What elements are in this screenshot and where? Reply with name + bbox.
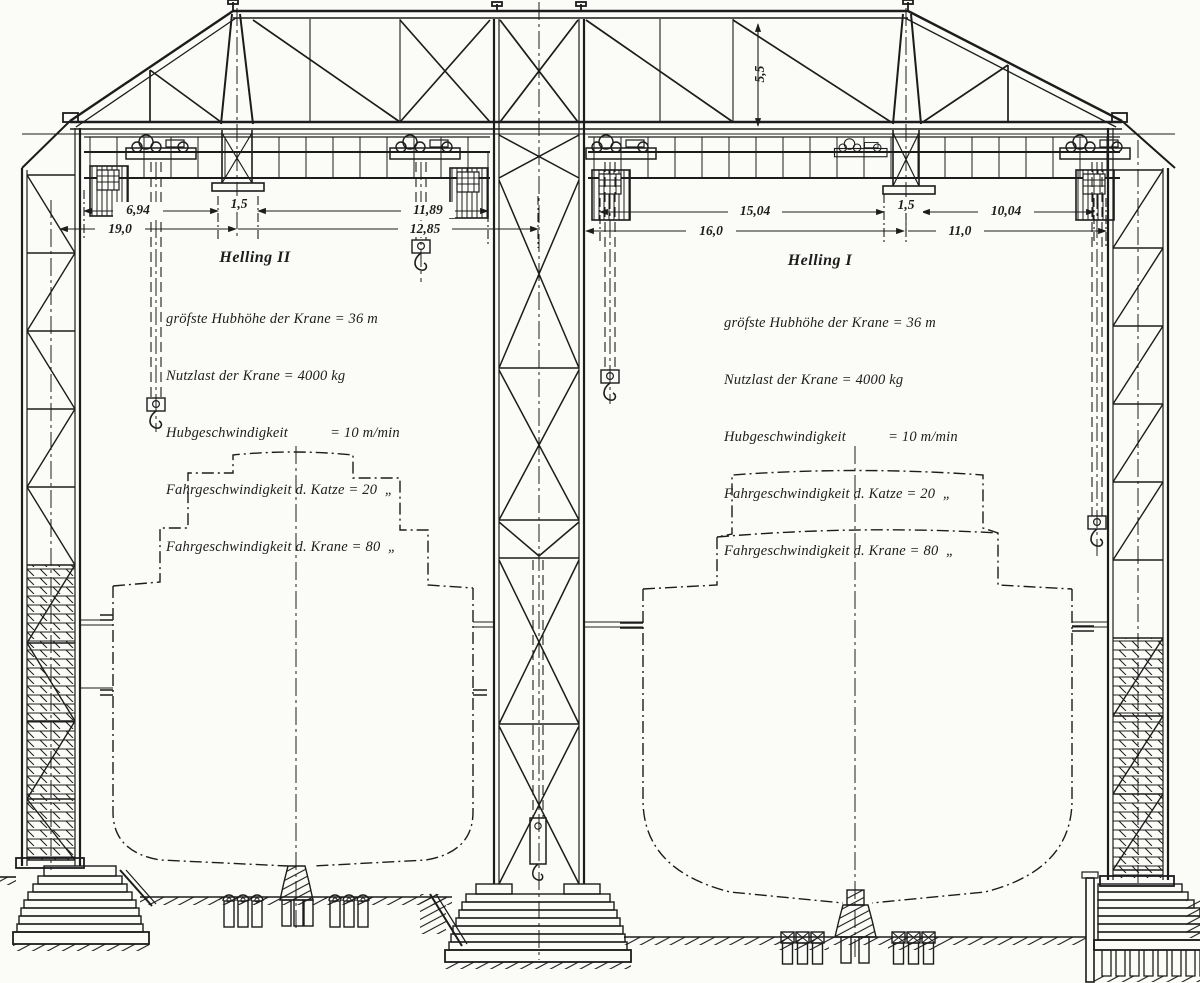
dim-label-6-94: 6,94 bbox=[113, 202, 163, 218]
ground-and-foundations bbox=[0, 866, 1200, 982]
dim-label-16-0: 16,0 bbox=[686, 223, 736, 239]
runway-right-bay bbox=[588, 137, 1120, 178]
spec-line: Nutzlast der Krane = 4000 kg bbox=[724, 371, 958, 390]
a-frame-left bbox=[212, 14, 264, 191]
dim-label-19-0: 19,0 bbox=[95, 221, 145, 237]
spec-line: Hubgeschwindigkeit = 10 m/min bbox=[724, 428, 958, 447]
left-tower-foundation bbox=[13, 866, 156, 951]
roof-truss bbox=[22, 0, 1175, 194]
spec-line: gröfste Hubhöhe der Krane = 36 m bbox=[724, 314, 958, 333]
spec-line: gröfste Hubhöhe der Krane = 36 m bbox=[166, 310, 400, 329]
drawing-sheet: Helling II gröfste Hubhöhe der Krane = 3… bbox=[0, 0, 1200, 983]
slipway-left-specs: gröfste Hubhöhe der Krane = 36 m Nutzlas… bbox=[166, 272, 400, 576]
slipway-right-specs: gröfste Hubhöhe der Krane = 36 m Nutzlas… bbox=[724, 276, 958, 580]
right-lattice-tower bbox=[1100, 128, 1174, 886]
right-tower-foundation bbox=[1082, 872, 1200, 982]
dim-label-11-0: 11,0 bbox=[936, 223, 984, 239]
dim-label-1-5-right: 1,5 bbox=[889, 197, 923, 213]
dim-label-11-89: 11,89 bbox=[401, 202, 455, 218]
spec-line: Fahrgeschwindigkeit d. Krane = 80 „ bbox=[166, 538, 400, 557]
dim-label-1-5-left: 1,5 bbox=[222, 196, 256, 212]
keel-blocks-right bbox=[777, 890, 940, 964]
dim-label-15-04: 15,04 bbox=[728, 203, 782, 219]
dim-label-5-5: 5,5 bbox=[752, 52, 768, 96]
spec-line: Nutzlast der Krane = 4000 kg bbox=[166, 367, 400, 386]
spec-line: Hubgeschwindigkeit = 10 m/min bbox=[166, 424, 400, 443]
slipway-right-title: Helling I bbox=[745, 252, 895, 270]
spec-line: Fahrgeschwindigkeit d. Katze = 20 „ bbox=[724, 485, 958, 504]
center-tower-hoist bbox=[530, 560, 546, 880]
platform-stubs bbox=[80, 620, 1108, 688]
runway-left-bay bbox=[84, 137, 490, 178]
spec-line: Fahrgeschwindigkeit d. Katze = 20 „ bbox=[166, 481, 400, 500]
dim-label-12-85: 12,85 bbox=[398, 221, 452, 237]
dim-label-10-04: 10,04 bbox=[978, 203, 1034, 219]
slipway-left-title: Helling II bbox=[180, 249, 330, 267]
left-lattice-tower bbox=[16, 128, 84, 868]
spec-line: Fahrgeschwindigkeit d. Krane = 80 „ bbox=[724, 542, 958, 561]
